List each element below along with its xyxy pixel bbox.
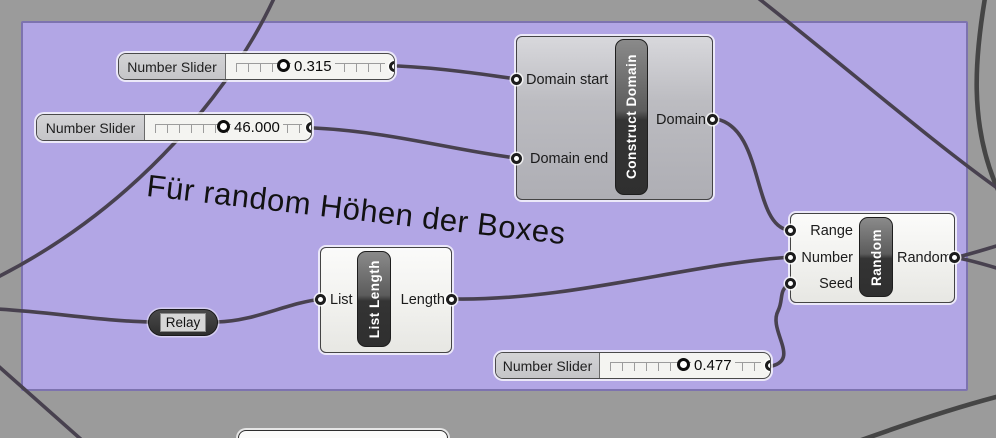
wire-random-out-upper[interactable] (958, 245, 996, 257)
number-slider-3[interactable]: Number Slider 0.477 (495, 352, 771, 379)
list-length-component[interactable]: List Length List Length (320, 247, 452, 353)
number-slider-1-output-port[interactable] (389, 61, 395, 72)
random-input-label-number: Number (791, 249, 853, 267)
number-slider-2-output-port[interactable] (306, 122, 312, 133)
wire-crossing-bottomleft[interactable] (0, 364, 84, 438)
number-slider-1-label: Number Slider (119, 54, 226, 79)
wire-crossing-topright[interactable] (753, 0, 996, 190)
number-slider-2[interactable]: Number Slider 46.000 (36, 114, 312, 141)
number-slider-2-label: Number Slider (37, 115, 145, 140)
number-slider-1-knob[interactable] (277, 59, 290, 72)
list-length-name-tag[interactable]: List Length (357, 251, 391, 347)
number-slider-1[interactable]: Number Slider 0.315 (118, 53, 395, 80)
random-output-label: Random (897, 249, 952, 267)
random-input-label-seed: Seed (791, 275, 853, 293)
construct-domain-name-tag[interactable]: Construct Domain (615, 39, 648, 195)
construct-domain-output-label: Domain (654, 111, 706, 129)
partial-component-bottom[interactable] (238, 430, 448, 438)
node-editor-canvas[interactable]: Number Slider 0.315 Number Slider 46.000… (0, 0, 996, 438)
wire-slider3-to-seed[interactable] (772, 284, 790, 366)
wire-relay-to-list[interactable] (217, 299, 322, 322)
list-length-output-port[interactable] (446, 294, 457, 305)
construct-domain-output-port[interactable] (707, 114, 718, 125)
construct-domain-input-port-start[interactable] (511, 74, 522, 85)
random-input-port-number[interactable] (785, 252, 796, 263)
random-component[interactable]: Random Range Number Seed Random (790, 213, 955, 303)
wire-left-to-relay[interactable] (0, 309, 150, 322)
random-input-port-seed[interactable] (785, 278, 796, 289)
number-slider-2-value: 46.000 (231, 119, 283, 137)
number-slider-3-knob[interactable] (677, 358, 690, 371)
list-length-input-label: List (330, 291, 353, 309)
number-slider-3-value: 0.477 (691, 357, 735, 375)
construct-domain-component[interactable]: Construct Domain Domain start Domain end… (516, 36, 713, 200)
number-slider-1-value: 0.315 (291, 58, 335, 76)
number-slider-3-label: Number Slider (496, 353, 600, 378)
relay-label: Relay (160, 313, 206, 332)
construct-domain-name: Construct Domain (624, 54, 639, 179)
wire-domain-to-range[interactable] (716, 119, 788, 230)
random-output-port[interactable] (949, 252, 960, 263)
construct-domain-input-port-end[interactable] (511, 153, 522, 164)
relay-node[interactable]: Relay (148, 309, 218, 336)
list-length-name: List Length (367, 260, 382, 338)
random-input-port-range[interactable] (785, 225, 796, 236)
wire-outer-bottom-right[interactable] (856, 396, 996, 438)
wire-outer-top-right-arc[interactable] (977, 0, 996, 192)
list-length-output-label: Length (397, 291, 445, 309)
wire-random-out-lower[interactable] (958, 258, 996, 269)
wire-length-to-number[interactable] (454, 257, 792, 299)
number-slider-3-output-port[interactable] (765, 360, 771, 371)
random-name-tag[interactable]: Random (859, 217, 893, 297)
number-slider-2-knob[interactable] (217, 120, 230, 133)
construct-domain-input-label-end: Domain end (530, 150, 608, 168)
construct-domain-input-label-start: Domain start (526, 71, 608, 89)
wire-slider1-to-domainstart[interactable] (398, 66, 516, 79)
list-length-input-port[interactable] (315, 294, 326, 305)
random-name: Random (869, 229, 884, 286)
random-input-label-range: Range (791, 222, 853, 240)
wire-slider2-to-domainend[interactable] (314, 128, 516, 158)
